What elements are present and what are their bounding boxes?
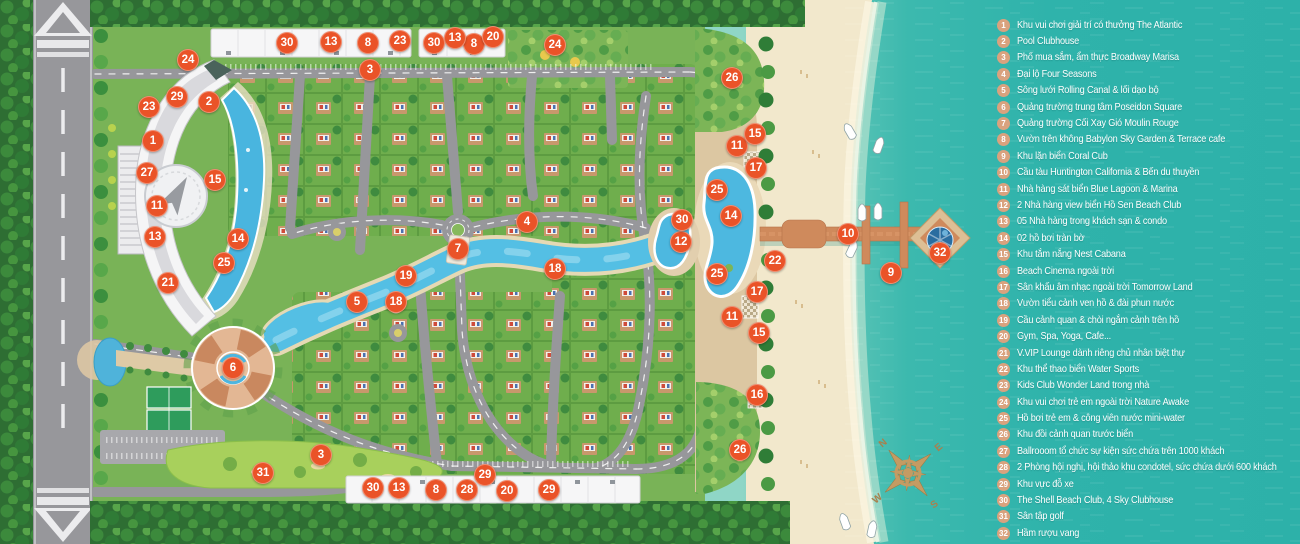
legend-item-label: Kids Club Wonder Land trong nhà: [1017, 380, 1149, 391]
legend-item-label: Khu thể thao biển Water Sports: [1017, 364, 1139, 375]
map-marker-number: 1: [150, 135, 156, 147]
map-marker-number: 24: [549, 39, 562, 51]
legend-item-label: Sân khấu âm nhạc ngoài trời Tomorrow Lan…: [1017, 282, 1193, 293]
legend-item-number: 9: [997, 150, 1010, 163]
map-marker[interactable]: 25: [706, 263, 728, 285]
legend-item-label: Cầu tàu Huntington California & Bến du t…: [1017, 167, 1199, 178]
map-marker-number: 20: [487, 31, 500, 43]
map-marker-number: 9: [888, 267, 894, 279]
map-marker-number: 30: [676, 214, 689, 226]
map-marker-number: 17: [750, 162, 763, 174]
legend-item: 1 Khu vui chơi giải trí có thưởng The At…: [997, 17, 1297, 33]
map-marker[interactable]: 16: [746, 384, 768, 406]
map-marker[interactable]: 12: [670, 231, 692, 253]
legend-item-number: 4: [997, 68, 1010, 81]
map-marker[interactable]: 13: [444, 27, 466, 49]
resort-master-plan: POLARIS RD.: [0, 0, 1300, 544]
map-marker[interactable]: 18: [544, 258, 566, 280]
legend-item: 24 Khu vui chơi trẻ em ngoài trời Nature…: [997, 394, 1297, 410]
map-marker-number: 11: [151, 200, 163, 212]
map-marker-number: 25: [711, 184, 724, 196]
legend-item-label: 2 Phòng hội nghị, hội thảo khu condotel,…: [1017, 462, 1277, 473]
legend-item-label: Hồ bơi trẻ em & công viên nước mini-wate…: [1017, 413, 1185, 424]
map-marker[interactable]: 14: [720, 205, 742, 227]
legend-item-label: Khu tắm nắng Nest Cabana: [1017, 249, 1126, 260]
legend-item-label: The Shell Beach Club, 4 Sky Clubhouse: [1017, 495, 1173, 506]
map-marker-number: 30: [367, 482, 380, 494]
map-marker[interactable]: 21: [157, 272, 179, 294]
map-marker[interactable]: 14: [227, 228, 249, 250]
legend-item-label: Beach Cinema ngoài trời: [1017, 266, 1114, 277]
legend-item-number: 2: [997, 35, 1010, 48]
map-marker[interactable]: 26: [721, 67, 743, 89]
legend-item-number: 30: [997, 494, 1010, 507]
map-marker[interactable]: 13: [320, 31, 342, 53]
map-marker-number: 29: [479, 469, 492, 481]
map-marker-number: 8: [365, 37, 371, 49]
map-marker[interactable]: 17: [746, 281, 768, 303]
legend-item-label: Cầu cảnh quan & chòi ngắm cảnh trên hồ: [1017, 315, 1179, 326]
legend-item-number: 20: [997, 330, 1010, 343]
map-marker-number: 25: [218, 257, 231, 269]
legend-item-label: Khu vực đỗ xe: [1017, 479, 1074, 490]
map-marker-number: 32: [934, 247, 947, 259]
map-marker-number: 13: [149, 231, 162, 243]
map-marker-number: 13: [325, 36, 338, 48]
legend-item: 4 Đại lộ Four Seasons: [997, 66, 1297, 82]
map-marker[interactable]: 2: [198, 91, 220, 113]
map-marker-number: 16: [751, 389, 764, 401]
legend-item-label: Gym, Spa, Yoga, Cafe...: [1017, 331, 1111, 342]
legend-item: 26 Khu đồi cảnh quan trước biển: [997, 427, 1297, 443]
legend-item-label: Ballrooom tổ chức sự kiện sức chứa trên …: [1017, 446, 1224, 457]
legend-item: 9 Khu lặn biển Coral Cub: [997, 148, 1297, 164]
map-marker-number: 23: [394, 35, 407, 47]
legend-item-number: 23: [997, 379, 1010, 392]
map-marker[interactable]: 13: [388, 477, 410, 499]
legend-item-number: 25: [997, 412, 1010, 425]
legend-item-number: 3: [997, 51, 1010, 64]
legend-item-number: 10: [997, 166, 1010, 179]
map-marker[interactable]: 26: [729, 439, 751, 461]
legend-item: 14 02 hồ bơi tràn bờ: [997, 230, 1297, 246]
map-marker-number: 18: [390, 296, 403, 308]
highway: [0, 0, 106, 544]
legend-item-label: Sông lưới Rolling Canal & lối dạo bộ: [1017, 85, 1159, 96]
legend-item-number: 11: [997, 183, 1010, 196]
map-marker-number: 29: [171, 91, 184, 103]
legend-item-number: 21: [997, 347, 1010, 360]
legend-item: 18 Vườn tiểu cảnh ven hồ & đài phun nước: [997, 296, 1297, 312]
legend-item-label: Hầm rượu vang: [1017, 528, 1079, 539]
map-marker[interactable]: 24: [177, 49, 199, 71]
legend-item-number: 26: [997, 428, 1010, 441]
map-marker[interactable]: 9: [880, 262, 902, 284]
map-marker-number: 15: [209, 174, 222, 186]
map-marker-number: 13: [393, 482, 406, 494]
map-marker-number: 13: [449, 32, 462, 44]
legend-item: 29 Khu vực đỗ xe: [997, 476, 1297, 492]
legend-item-label: Sân tập golf: [1017, 511, 1064, 522]
legend-item: 5 Sông lưới Rolling Canal & lối dạo bộ: [997, 83, 1297, 99]
map-marker[interactable]: 25: [706, 179, 728, 201]
legend-item: 6 Quảng trường trung tâm Poseidon Square: [997, 99, 1297, 115]
legend-item-label: Khu vui chơi giải trí có thưởng The Atla…: [1017, 20, 1182, 31]
map-marker[interactable]: 19: [395, 265, 417, 287]
map-marker-number: 26: [734, 444, 747, 456]
legend-item: 13 05 Nhà hàng trong khách sạn & condo: [997, 214, 1297, 230]
map-marker-number: 14: [725, 210, 738, 222]
legend-item: 8 Vườn trên không Babylon Sky Garden & T…: [997, 132, 1297, 148]
legend-item-number: 5: [997, 84, 1010, 97]
legend-item-number: 31: [997, 510, 1010, 523]
map-marker-number: 24: [182, 54, 195, 66]
map-marker-number: 3: [367, 64, 373, 76]
map-marker-number: 4: [524, 216, 530, 228]
legend-item-number: 6: [997, 101, 1010, 114]
map-marker[interactable]: 25: [213, 252, 235, 274]
legend-item-number: 19: [997, 314, 1010, 327]
map-marker-number: 8: [471, 38, 477, 50]
map-marker-number: 17: [751, 286, 764, 298]
legend-item: 22 Khu thể thao biển Water Sports: [997, 361, 1297, 377]
map-marker[interactable]: 4: [516, 211, 538, 233]
map-marker-number: 8: [433, 484, 439, 496]
map-marker-number: 14: [232, 233, 245, 245]
map-marker-number: 11: [731, 140, 743, 152]
legend-item-label: Quảng trường trung tâm Poseidon Square: [1017, 102, 1182, 113]
map-marker-number: 10: [842, 228, 855, 240]
legend-item-number: 32: [997, 527, 1010, 540]
legend-item-number: 28: [997, 461, 1010, 474]
map-marker[interactable]: 18: [385, 291, 407, 313]
legend-item-number: 1: [997, 19, 1010, 32]
legend-item: 2 Pool Clubhouse: [997, 33, 1297, 49]
map-marker-number: 29: [543, 484, 556, 496]
map-marker-number: 21: [162, 277, 175, 289]
legend-item-label: 2 Nhà hàng view biển Hồ Sen Beach Club: [1017, 200, 1181, 211]
map-marker[interactable]: 31: [252, 462, 274, 484]
map-marker-number: 30: [281, 37, 294, 49]
map-marker[interactable]: 11: [146, 195, 168, 217]
legend-item-label: Khu vui chơi trẻ em ngoài trời Nature Aw…: [1017, 397, 1189, 408]
legend-item: 31 Sân tập golf: [997, 509, 1297, 525]
legend-item: 10 Cầu tàu Huntington California & Bến d…: [997, 165, 1297, 181]
map-marker[interactable]: 7: [447, 238, 469, 260]
map-marker-number: 6: [230, 362, 236, 374]
legend-item-label: Vườn tiểu cảnh ven hồ & đài phun nước: [1017, 298, 1174, 309]
legend-item: 16 Beach Cinema ngoài trời: [997, 263, 1297, 279]
legend-item: 7 Quảng trường Cối Xay Gió Moulin Rouge: [997, 115, 1297, 131]
map-marker-number: 20: [501, 485, 514, 497]
legend-item: 3 Phố mua sắm, ẩm thực Broadway Marisa: [997, 50, 1297, 66]
map-marker-number: 18: [549, 263, 562, 275]
map-marker[interactable]: 30: [362, 477, 384, 499]
map-marker-number: 3: [318, 449, 324, 461]
map-marker[interactable]: 15: [748, 322, 770, 344]
map-marker-number: 11: [726, 311, 738, 323]
legend-item-label: 05 Nhà hàng trong khách sạn & condo: [1017, 216, 1167, 227]
map-marker-number: 7: [455, 243, 461, 255]
map-marker[interactable]: 10: [837, 223, 859, 245]
legend-item: 23 Kids Club Wonder Land trong nhà: [997, 378, 1297, 394]
map-marker[interactable]: 15: [744, 123, 766, 145]
legend-item: 15 Khu tắm nắng Nest Cabana: [997, 246, 1297, 262]
map-marker[interactable]: 29: [166, 86, 188, 108]
map-marker-number: 23: [143, 101, 156, 113]
legend-item-number: 14: [997, 232, 1010, 245]
legend-item-number: 29: [997, 478, 1010, 491]
map-marker-number: 15: [753, 327, 766, 339]
legend-item: 30 The Shell Beach Club, 4 Sky Clubhouse: [997, 492, 1297, 508]
legend-item-number: 18: [997, 297, 1010, 310]
legend-item-number: 13: [997, 215, 1010, 228]
map-marker-number: 28: [461, 484, 474, 496]
map-marker-number: 15: [749, 128, 762, 140]
legend-item-number: 16: [997, 265, 1010, 278]
legend-item: 27 Ballrooom tổ chức sự kiện sức chứa tr…: [997, 443, 1297, 459]
map-marker[interactable]: 15: [204, 169, 226, 191]
legend-item-number: 24: [997, 396, 1010, 409]
map-marker[interactable]: 6: [222, 357, 244, 379]
map-marker[interactable]: 30: [276, 32, 298, 54]
legend-item-number: 22: [997, 363, 1010, 376]
legend-item: 20 Gym, Spa, Yoga, Cafe...: [997, 328, 1297, 344]
legend-item-number: 12: [997, 199, 1010, 212]
map-marker-number: 26: [726, 72, 739, 84]
map-marker[interactable]: 30: [423, 32, 445, 54]
map-marker[interactable]: 20: [482, 26, 504, 48]
map-marker[interactable]: 30: [671, 209, 693, 231]
map-marker-number: 25: [711, 268, 724, 280]
legend-item: 25 Hồ bơi trẻ em & công viên nước mini-w…: [997, 410, 1297, 426]
legend-item-label: 02 hồ bơi tràn bờ: [1017, 233, 1084, 244]
map-marker[interactable]: 8: [357, 32, 379, 54]
map-marker[interactable]: 22: [764, 250, 786, 272]
map-marker[interactable]: 32: [929, 242, 951, 264]
map-marker[interactable]: 20: [496, 480, 518, 502]
map-marker-number: 22: [769, 255, 782, 267]
map-marker-number: 2: [206, 96, 212, 108]
legend-item-label: Khu lặn biển Coral Cub: [1017, 151, 1108, 162]
legend-item-label: Vườn trên không Babylon Sky Garden & Ter…: [1017, 134, 1225, 145]
map-marker[interactable]: 13: [144, 226, 166, 248]
legend-item-number: 27: [997, 445, 1010, 458]
legend-item: 17 Sân khấu âm nhạc ngoài trời Tomorrow …: [997, 279, 1297, 295]
legend-item-number: 15: [997, 248, 1010, 261]
map-marker[interactable]: 27: [136, 162, 158, 184]
map-marker[interactable]: 29: [474, 464, 496, 486]
map-marker[interactable]: 17: [745, 157, 767, 179]
map-marker-number: 19: [400, 270, 413, 282]
legend-item-label: Pool Clubhouse: [1017, 36, 1079, 47]
legend-item-label: Đại lộ Four Seasons: [1017, 69, 1097, 80]
map-marker[interactable]: 29: [538, 479, 560, 501]
map-marker[interactable]: 28: [456, 479, 478, 501]
legend-item-number: 17: [997, 281, 1010, 294]
legend-item: 21 V.VIP Lounge dành riêng chủ nhân biệt…: [997, 345, 1297, 361]
map-marker[interactable]: 24: [544, 34, 566, 56]
legend-item: 28 2 Phòng hội nghị, hội thảo khu condot…: [997, 460, 1297, 476]
legend-panel: 1 Khu vui chơi giải trí có thưởng The At…: [997, 17, 1297, 542]
map-marker[interactable]: 3: [310, 444, 332, 466]
map-marker-number: 5: [354, 296, 360, 308]
map-marker[interactable]: 5: [346, 291, 368, 313]
legend-item-label: Phố mua sắm, ẩm thực Broadway Marisa: [1017, 52, 1179, 63]
legend-item: 12 2 Nhà hàng view biển Hồ Sen Beach Clu…: [997, 197, 1297, 213]
legend-item-label: Nhà hàng sát biển Blue Lagoon & Marina: [1017, 184, 1178, 195]
legend-item-label: Khu đồi cảnh quan trước biển: [1017, 429, 1133, 440]
map-marker[interactable]: 8: [425, 479, 447, 501]
legend-item: 19 Cầu cảnh quan & chòi ngắm cảnh trên h…: [997, 312, 1297, 328]
legend-item: 32 Hầm rượu vang: [997, 525, 1297, 541]
map-marker-number: 30: [428, 37, 441, 49]
map-marker[interactable]: 11: [721, 306, 743, 328]
legend-item-number: 8: [997, 133, 1010, 146]
map-marker-number: 12: [675, 236, 688, 248]
map-marker-number: 31: [257, 467, 270, 479]
legend-item-label: Quảng trường Cối Xay Gió Moulin Rouge: [1017, 118, 1179, 129]
map-marker[interactable]: 23: [138, 96, 160, 118]
map-marker-number: 27: [141, 167, 154, 179]
legend-item-number: 7: [997, 117, 1010, 130]
map-marker[interactable]: 23: [389, 30, 411, 52]
map-marker[interactable]: 3: [359, 59, 381, 81]
legend-item-label: V.VIP Lounge dành riêng chủ nhân biệt th…: [1017, 348, 1185, 359]
map-marker[interactable]: 1: [142, 130, 164, 152]
legend-item: 11 Nhà hàng sát biển Blue Lagoon & Marin…: [997, 181, 1297, 197]
